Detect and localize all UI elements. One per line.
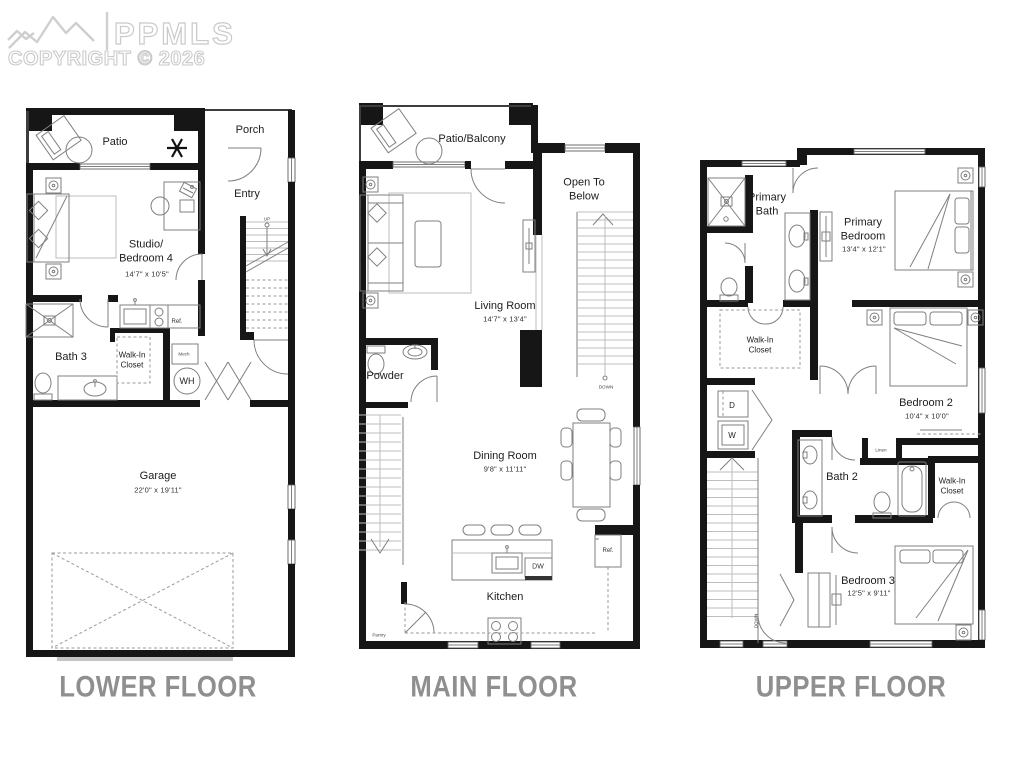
- dining-table: [561, 409, 621, 521]
- dims-garage: 22'0" x 19'11": [134, 486, 182, 495]
- label-up: UP: [264, 217, 270, 222]
- label-ref-main: Ref.: [602, 548, 613, 554]
- label-down-main: DOWN: [599, 385, 614, 390]
- room-label-garage: Garage: [140, 470, 177, 484]
- primary-bed: [895, 191, 973, 270]
- room-label-patio: Patio: [102, 136, 127, 150]
- room-label-primary-bedroom: Primary Bedroom: [841, 216, 886, 244]
- dims-studio-bedroom4: 14'7" x 10'5": [125, 270, 169, 279]
- floor-plan-sheet: PPMLS COPYRIGHT © 2026: [0, 0, 1012, 768]
- lower-floor-drawing: [22, 104, 312, 664]
- kitchen-island: [452, 525, 552, 580]
- room-label-bath2: Bath 2: [826, 471, 858, 485]
- room-label-kitchen: Kitchen: [487, 591, 524, 605]
- label-mech: Mech: [178, 352, 189, 357]
- label-linen: Linen: [875, 448, 886, 453]
- main-stairs-down: [577, 212, 633, 380]
- room-label-studio-bedroom4: Studio/ Bedroom 4: [119, 238, 173, 266]
- speaker-icon: [46, 178, 61, 279]
- dims-bedroom2: 10'4" x 10'0": [905, 412, 949, 421]
- dims-dining-room: 9'8" x 11'11": [484, 465, 527, 474]
- label-dw: DW: [532, 564, 544, 571]
- room-label-primary-bath: Primary Bath: [748, 191, 786, 219]
- room-label-porch: Porch: [236, 124, 265, 138]
- title-upper-floor: UPPER FLOOR: [756, 671, 946, 704]
- label-down-upper: DOWN: [754, 614, 759, 629]
- label-water-heater: WH: [180, 376, 195, 386]
- plant-icon: [167, 139, 187, 157]
- room-label-bath3: Bath 3: [55, 351, 87, 365]
- label-washer: W: [728, 431, 736, 441]
- main-doors: [405, 169, 505, 633]
- kitchen-appliances: [405, 535, 621, 644]
- lower-doors: [80, 148, 288, 400]
- room-label-living-room: Living Room: [474, 300, 535, 314]
- dims-bedroom3: 12'5" x 9'11": [847, 589, 890, 598]
- title-lower-floor: LOWER FLOOR: [59, 671, 257, 704]
- label-pantry: Pantry: [372, 633, 385, 638]
- ppmls-watermark: PPMLS COPYRIGHT © 2026: [6, 4, 246, 68]
- mountain-logo-icon: [8, 12, 107, 50]
- studio-bed: [27, 194, 116, 262]
- dims-living-room: 14'7" x 13'4": [483, 315, 527, 324]
- room-label-walk-in-closet-lower: Walk-In Closet: [119, 351, 146, 372]
- title-main-floor: MAIN FLOOR: [410, 671, 577, 704]
- double-doors-x: [205, 362, 251, 400]
- room-label-walk-in-closet-1: Walk-In Closet: [747, 336, 774, 357]
- lower-floor-plan: [22, 104, 312, 664]
- studio-desk: [151, 182, 200, 230]
- room-label-open-to-below: Open To Below: [563, 176, 604, 204]
- living-room-furniture: [360, 193, 535, 293]
- room-label-dining-room: Dining Room: [473, 450, 537, 464]
- lower-stairs: [246, 222, 288, 328]
- kitchenette: [120, 299, 200, 328]
- upper-stairs: [707, 458, 758, 626]
- room-label-powder: Powder: [366, 370, 403, 384]
- garage-parking-area: [52, 553, 233, 648]
- room-label-walk-in-closet-2: Walk-In Closet: [939, 477, 966, 498]
- dims-primary-bedroom: 13'4" x 12'1": [842, 245, 886, 254]
- room-label-entry: Entry: [234, 188, 260, 202]
- watermark-brand: PPMLS: [114, 16, 236, 51]
- label-dryer: D: [729, 401, 735, 411]
- label-ref-lower: Ref.: [171, 319, 182, 325]
- watermark-copyright: COPYRIGHT © 2026: [8, 48, 205, 68]
- room-label-bedroom2: Bedroom 2: [899, 397, 953, 411]
- room-label-bedroom3: Bedroom 3: [841, 575, 895, 589]
- room-label-patio-balcony: Patio/Balcony: [438, 133, 505, 147]
